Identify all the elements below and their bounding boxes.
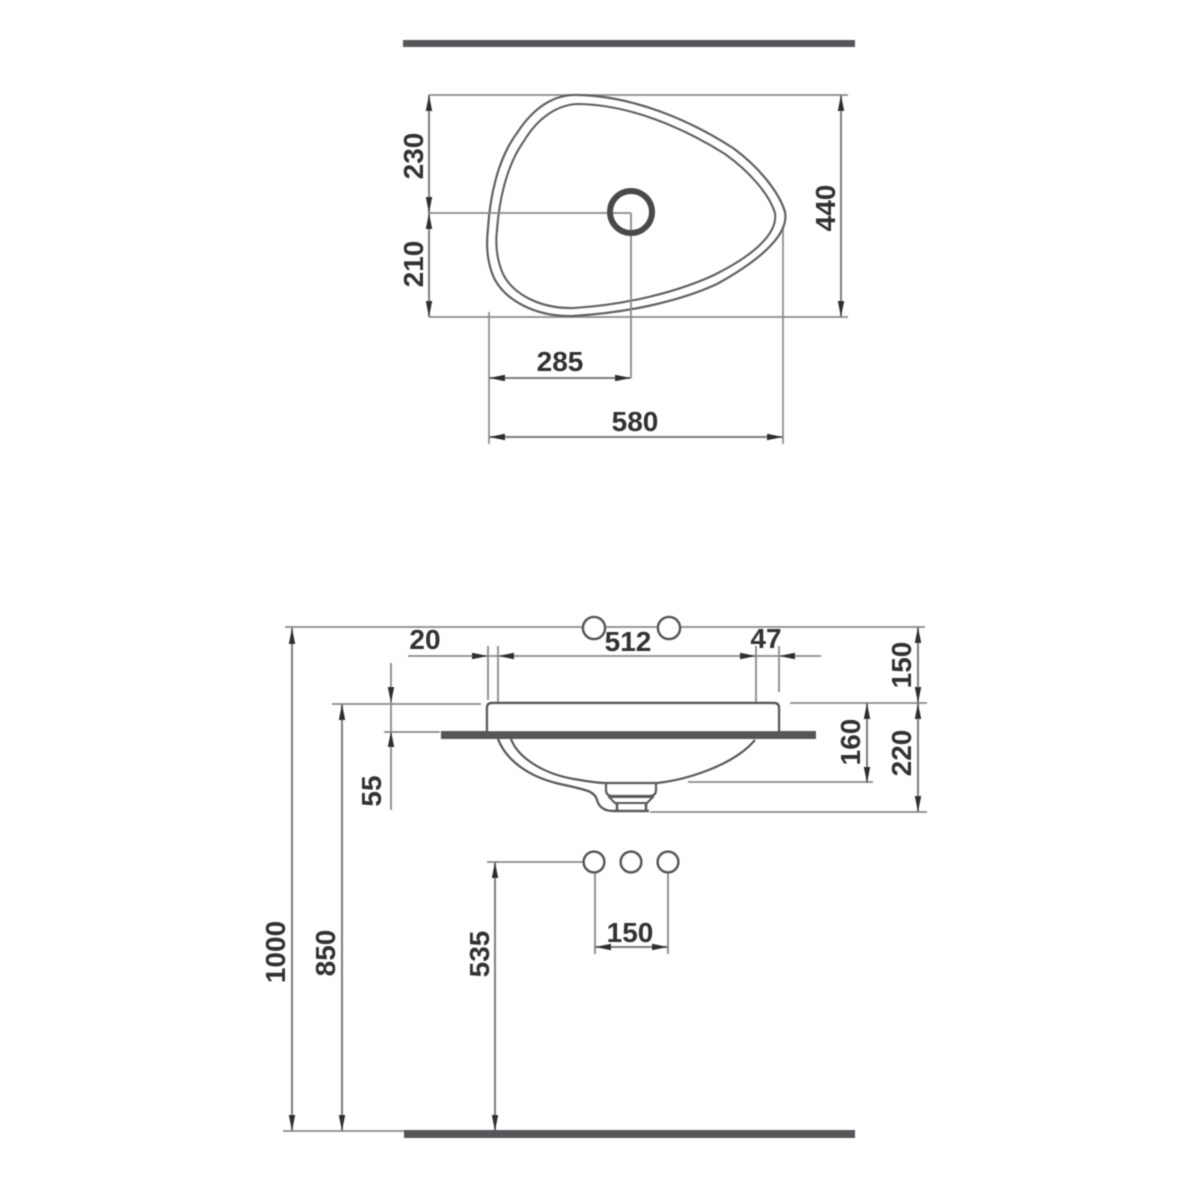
svg-text:512: 512 xyxy=(605,626,652,657)
svg-text:150: 150 xyxy=(886,642,917,689)
svg-text:220: 220 xyxy=(886,730,917,777)
svg-text:47: 47 xyxy=(750,623,781,654)
svg-text:850: 850 xyxy=(310,930,341,977)
svg-text:580: 580 xyxy=(612,406,659,437)
svg-text:285: 285 xyxy=(537,346,584,377)
svg-text:1000: 1000 xyxy=(260,921,291,983)
svg-text:55: 55 xyxy=(356,775,387,806)
svg-text:230: 230 xyxy=(398,133,429,180)
svg-text:160: 160 xyxy=(835,719,866,766)
svg-text:150: 150 xyxy=(607,917,654,948)
svg-text:210: 210 xyxy=(398,241,429,288)
svg-text:20: 20 xyxy=(409,624,440,655)
svg-text:440: 440 xyxy=(810,185,841,232)
svg-text:535: 535 xyxy=(464,931,495,978)
